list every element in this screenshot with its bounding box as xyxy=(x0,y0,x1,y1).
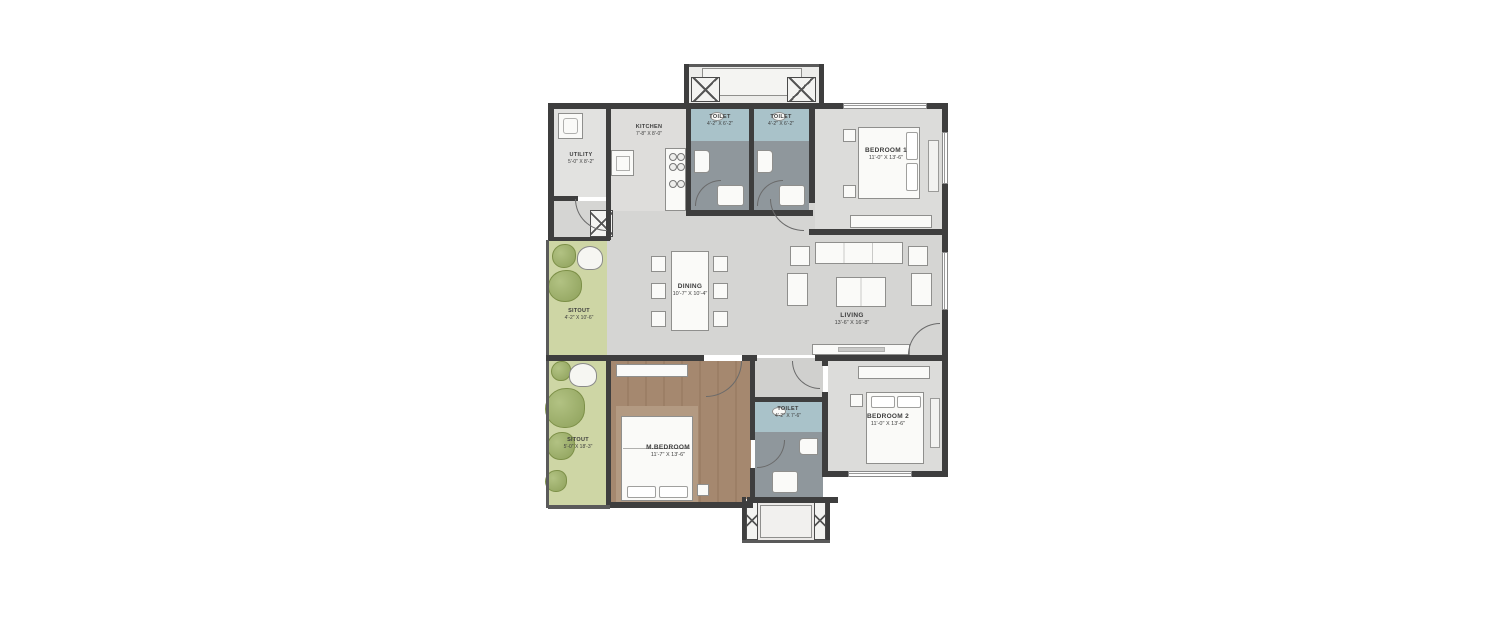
wall xyxy=(809,103,815,203)
wall xyxy=(822,358,828,366)
nightstand-icon xyxy=(697,484,709,496)
wall xyxy=(742,497,746,543)
room-dims: 5'-0" X 8'-2" xyxy=(568,159,594,166)
wall xyxy=(684,64,689,105)
wall xyxy=(822,392,828,477)
dining-chair-icon xyxy=(713,256,728,272)
shower-tray-icon xyxy=(717,185,744,206)
room-dims: 13'-6" X 16'-8" xyxy=(835,320,870,327)
wc-icon xyxy=(694,150,710,173)
dining-chair-icon xyxy=(651,283,666,299)
pillow-icon xyxy=(906,132,918,160)
wardrobe-icon xyxy=(616,364,688,377)
outdoor-chair-icon xyxy=(569,363,597,387)
wall xyxy=(606,358,611,508)
wall xyxy=(548,103,554,240)
plant-icon xyxy=(552,244,576,268)
hob-burner-icon xyxy=(677,153,685,161)
room-dims: 4'-2" X 7'-6" xyxy=(775,413,801,420)
nightstand-icon xyxy=(843,129,856,142)
room-name: SITOUT xyxy=(564,437,593,444)
hob-burner-icon xyxy=(669,153,677,161)
wall xyxy=(686,103,691,215)
dining-chair-icon xyxy=(651,311,666,327)
hob-burner-icon xyxy=(669,180,677,188)
wall xyxy=(684,64,824,67)
room-name: BEDROOM 2 xyxy=(867,413,909,421)
outdoor-chair-icon xyxy=(577,246,603,270)
tv-icon xyxy=(838,347,885,352)
wall xyxy=(749,103,754,215)
wc-icon xyxy=(757,150,773,173)
room-dims: 5'-0" X 18'-3" xyxy=(564,444,593,451)
room-label-m-bedroom: M.BEDROOM 11'-7" X 13'-6" xyxy=(646,444,690,460)
shower-tray-icon xyxy=(772,471,798,493)
room-name: TOILET xyxy=(768,114,794,121)
room-name: BEDROOM 1 xyxy=(865,147,907,155)
room-label-kitchen: KITCHEN 7'-8" X 8'-0" xyxy=(636,124,663,138)
window xyxy=(942,132,948,184)
room-name: SITOUT xyxy=(565,308,594,315)
plant-icon xyxy=(548,270,582,302)
room-name: LIVING xyxy=(835,312,870,320)
pillow-icon xyxy=(627,486,656,498)
room-label-dining: DINING 10'-7" X 10'-4" xyxy=(673,283,708,299)
room-name: M.BEDROOM xyxy=(646,444,690,452)
duct-hatch-icon xyxy=(814,501,826,540)
hob-burner-icon xyxy=(669,163,677,171)
wall xyxy=(548,237,610,241)
wall xyxy=(809,229,948,235)
floor-plan-canvas: UTILITY 5'-0" X 8'-2" KITCHEN 7'-8" X 8'… xyxy=(0,0,1500,625)
room-label-utility: UTILITY 5'-0" X 8'-2" xyxy=(568,152,594,166)
pillow-icon xyxy=(871,396,895,408)
window xyxy=(942,252,948,310)
wall xyxy=(826,497,830,543)
room-label-toilet-1: TOILET 4'-2" X 6'-2" xyxy=(707,114,733,128)
room-dims: 11'-0" X 13'-6" xyxy=(865,155,907,162)
duct-hatch-icon xyxy=(691,77,720,102)
window-bench-icon xyxy=(928,140,939,192)
pillow-icon xyxy=(906,163,918,191)
wall xyxy=(606,502,753,508)
room-label-toilet-3: TOILET 4'-2" X 7'-6" xyxy=(775,406,801,420)
room-name: TOILET xyxy=(707,114,733,121)
room-label-sitout-lower: SITOUT 5'-0" X 18'-3" xyxy=(564,437,593,451)
room-label-bedroom-1: BEDROOM 1 11'-0" X 13'-6" xyxy=(865,147,907,163)
wardrobe-icon xyxy=(850,215,932,228)
room-dims: 4'-2" X 10'-6" xyxy=(565,315,594,322)
room-name: KITCHEN xyxy=(636,124,663,131)
pillow-icon xyxy=(897,396,921,408)
room-dims: 11'-7" X 13'-6" xyxy=(646,452,690,459)
hob-burner-icon xyxy=(677,163,685,171)
room-dims: 10'-7" X 10'-4" xyxy=(673,291,708,298)
wall xyxy=(608,355,704,361)
wall xyxy=(546,355,610,361)
window xyxy=(843,103,927,109)
armchair-icon xyxy=(911,273,932,306)
room-label-sitout-upper: SITOUT 4'-2" X 10'-6" xyxy=(565,308,594,322)
window-bench-icon xyxy=(930,398,940,448)
plant-icon xyxy=(545,388,585,428)
wall xyxy=(742,540,830,543)
room-dims: 11'-0" X 13'-6" xyxy=(867,421,909,428)
room-dims: 4'-2" X 6'-2" xyxy=(707,121,733,128)
nightstand-icon xyxy=(843,185,856,198)
kitchen-sink-icon xyxy=(616,156,630,171)
plant-icon xyxy=(551,361,571,381)
dining-chair-icon xyxy=(713,283,728,299)
room-label-toilet-2: TOILET 4'-2" X 6'-2" xyxy=(768,114,794,128)
wc-icon xyxy=(799,438,818,455)
room-name: TOILET xyxy=(775,406,801,413)
coffee-table-icon xyxy=(836,277,886,307)
room-name: UTILITY xyxy=(568,152,594,159)
wall xyxy=(942,358,948,477)
room-dims: 7'-8" X 8'-0" xyxy=(636,131,663,138)
dining-chair-icon xyxy=(651,256,666,272)
sofa-icon xyxy=(815,242,903,264)
room-dims: 4'-2" X 6'-2" xyxy=(768,121,794,128)
duct-hatch-icon xyxy=(787,77,816,102)
room-name: DINING xyxy=(673,283,708,291)
dining-chair-icon xyxy=(713,311,728,327)
washing-machine-drum xyxy=(563,118,578,134)
wall xyxy=(819,64,824,105)
wall xyxy=(815,355,948,361)
window xyxy=(848,471,912,477)
duct-bottom-tray xyxy=(760,505,812,538)
wall xyxy=(546,240,549,508)
room-label-living: LIVING 13'-6" X 16'-8" xyxy=(835,312,870,328)
wall xyxy=(755,397,825,402)
hob-burner-icon xyxy=(677,180,685,188)
wardrobe-icon xyxy=(858,366,930,379)
armchair-icon xyxy=(787,273,808,306)
nightstand-icon xyxy=(850,394,863,407)
wall xyxy=(548,505,610,509)
pillow-icon xyxy=(659,486,688,498)
wall xyxy=(747,497,838,503)
side-table-icon xyxy=(790,246,810,266)
side-table-icon xyxy=(908,246,928,266)
room-label-bedroom-2: BEDROOM 2 11'-0" X 13'-6" xyxy=(867,413,909,429)
